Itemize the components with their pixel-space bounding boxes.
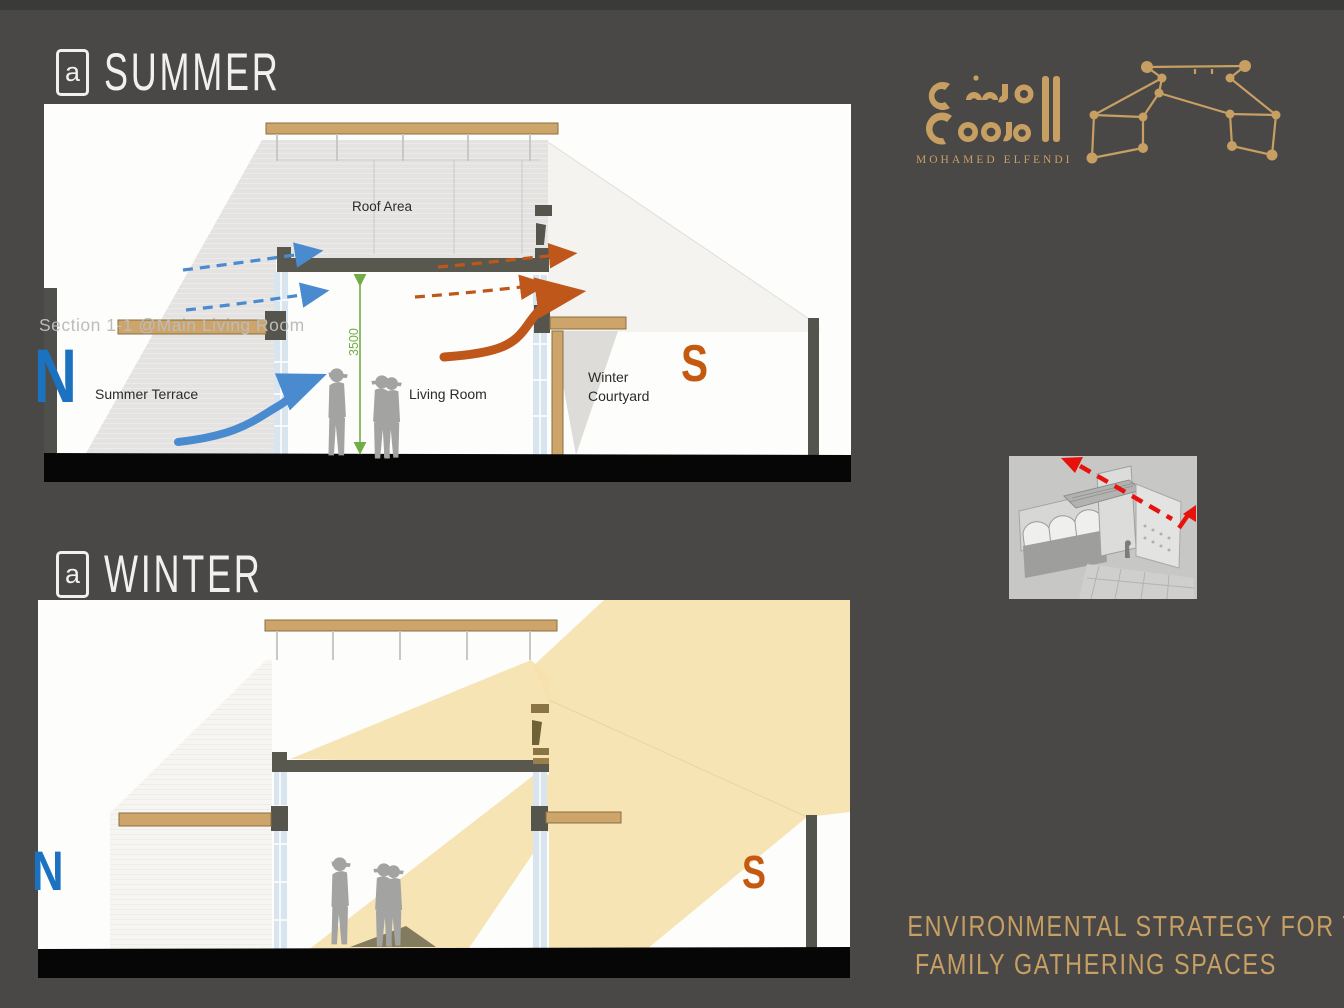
winter-courtyard-label: Winter Courtyard <box>588 368 649 406</box>
at-glyph-icon: a <box>56 49 89 96</box>
section-outline-node-diagram <box>1075 58 1287 170</box>
winter-title-text: WINTER <box>104 544 262 605</box>
logo-calligraphy-icon <box>916 72 1068 146</box>
logo-name: MOHAMED ELFENDI <box>916 154 1068 166</box>
summer-north-letter: N <box>34 333 89 420</box>
summer-title: a SUMMER <box>56 42 364 103</box>
slab-left-upturn <box>272 752 287 772</box>
at-glyph-icon: a <box>56 551 89 598</box>
south-boundary-wall <box>806 815 817 952</box>
roof-timber-beam <box>265 620 557 631</box>
slide-top-edge <box>0 0 1344 10</box>
courtyard-timber-beam <box>550 317 626 329</box>
terrace-column-head <box>271 806 288 831</box>
ground-slab <box>44 453 851 482</box>
living-room-label: Living Room <box>409 386 487 402</box>
dimension-value: 3500 <box>347 328 361 356</box>
slide-canvas: a SUMMER <box>0 0 1344 1008</box>
courtyard-timber-post <box>552 331 563 458</box>
logo-block: MOHAMED ELFENDI <box>916 72 1068 166</box>
slide-caption: ENVIRONMENTAL STRATEGY FOR THE FAMILY GA… <box>866 908 1326 984</box>
axonometric-thumbnail <box>1009 456 1197 599</box>
roof-area-label: Roof Area <box>352 199 412 214</box>
winter-north-letter: N <box>32 838 72 903</box>
summer-section-diagram: Roof Area Summer Terrace Living Room Win… <box>44 104 851 482</box>
winter-title: a WINTER <box>56 544 337 605</box>
slab-left-upturn <box>277 247 291 272</box>
courtyard-timber-beam <box>546 812 621 823</box>
roof-timber-beam <box>266 123 558 134</box>
caption-line-2: FAMILY GATHERING SPACES <box>907 946 1284 984</box>
winter-section-diagram: N S <box>38 600 850 978</box>
summer-title-text: SUMMER <box>104 42 281 103</box>
summer-terrace-label: Summer Terrace <box>95 386 198 402</box>
roof-slab <box>284 760 549 772</box>
winter-south-letter: S <box>742 845 773 899</box>
south-column-head <box>531 806 548 831</box>
winter-section-drawing <box>38 600 850 978</box>
summer-section-drawing <box>44 104 851 482</box>
summer-south-letter: S <box>681 334 716 394</box>
caption-line-1: ENVIRONMENTAL STRATEGY FOR THE <box>907 908 1284 946</box>
south-boundary-wall <box>808 318 819 455</box>
terrace-timber-beam <box>119 813 271 826</box>
ground-slab <box>38 947 850 978</box>
